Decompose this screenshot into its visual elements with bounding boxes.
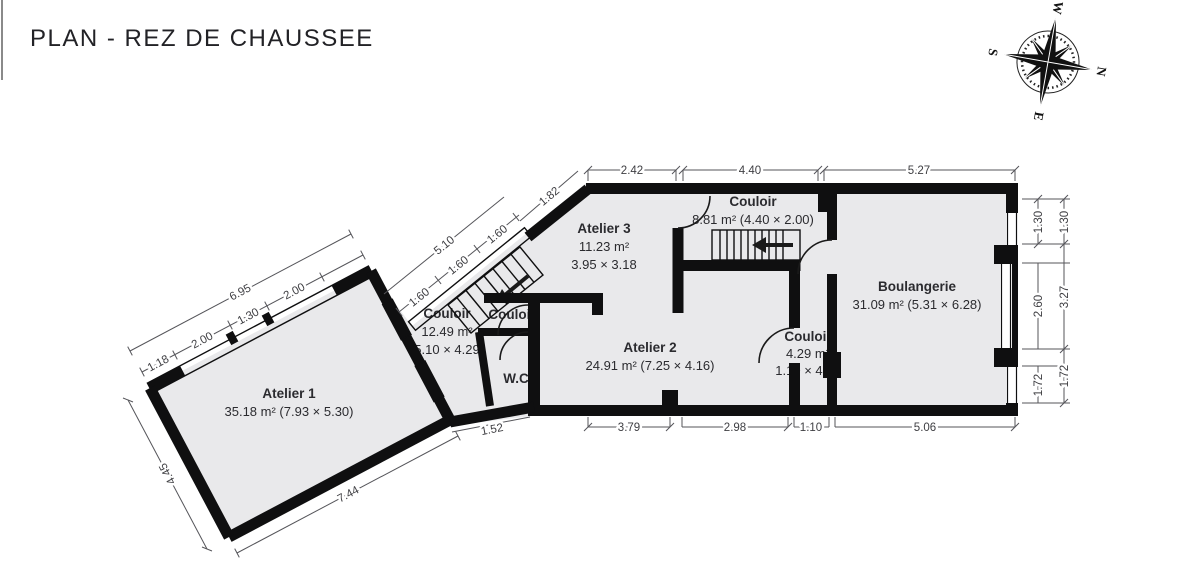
wall-under-stair	[673, 260, 801, 271]
compass-label-w: W	[1050, 0, 1067, 15]
dim-label: 1.72	[1033, 374, 1045, 396]
dim-label: 3.27	[1059, 286, 1071, 308]
compass-cardinal-star	[995, 9, 1102, 116]
wall-boulangerie-left-upper	[827, 194, 837, 240]
dim-label: 1.10	[800, 422, 822, 434]
floor	[150, 183, 1018, 537]
wall-bottom	[528, 405, 1018, 416]
dim-label: 5.06	[914, 422, 936, 434]
room-label-couloir-top-area: 8.81 m² (4.40 × 2.00)	[692, 212, 814, 227]
floor-plan-page: Atelier 3 11.23 m² 3.95 × 3.18 Couloir 8…	[0, 0, 1200, 561]
dim-label: 2.00	[282, 281, 307, 302]
floor-plan-canvas: Atelier 3 11.23 m² 3.95 × 3.18 Couloir 8…	[0, 0, 1200, 561]
dim-label: 1.52	[480, 422, 504, 438]
room-label-boulangerie-area: 31.09 m² (5.31 × 6.28)	[853, 297, 982, 312]
dim-label: 1.30	[1033, 211, 1045, 233]
room-label-wc-name: W.C	[503, 371, 529, 386]
dim-label: 2.98	[724, 422, 746, 434]
dim-label: 2.60	[1033, 295, 1045, 317]
dim-label: 3.79	[618, 422, 640, 434]
wall-atelier2-top	[484, 293, 603, 303]
floor-slab	[150, 183, 1018, 537]
dim-label: 1.72	[1059, 365, 1071, 387]
room-label-atelier3-name: Atelier 3	[577, 221, 631, 236]
compass-label-s: S	[985, 47, 1001, 57]
dim-label: 1.18	[146, 353, 171, 374]
room-label-boulangerie-name: Boulangerie	[878, 279, 957, 294]
room-label-atelier3-area: 11.23 m²	[579, 239, 630, 254]
room-label-couloir-top-name: Couloir	[729, 194, 777, 209]
room-label-atelier3-dims: 3.95 × 3.18	[571, 257, 636, 272]
dim-label: 5.27	[908, 165, 930, 177]
room-label-atelier2-area: 24.91 m² (7.25 × 4.16)	[586, 358, 715, 373]
page-title: PLAN - REZ DE CHAUSSEE	[30, 25, 374, 52]
dim-label: 6.95	[228, 282, 253, 303]
compass-label-n: N	[1093, 66, 1110, 78]
dim-label: 2.00	[190, 330, 215, 351]
room-label-atelier1-area: 35.18 m² (7.93 × 5.30)	[225, 404, 354, 419]
dim-label: 4.45	[157, 461, 178, 486]
wall-couloir-small-lower	[789, 363, 800, 416]
wall-wc-top	[478, 328, 528, 336]
wall-stub-bottom	[662, 390, 678, 405]
compass-rose: N E S W	[976, 0, 1120, 131]
room-label-couloir-small-name: Couloir	[784, 329, 832, 344]
compass-label-e: E	[1031, 111, 1047, 122]
dim-label: 1.30	[1059, 211, 1071, 233]
room-label-atelier1-name: Atelier 1	[262, 386, 316, 401]
dim-label: 4.40	[739, 165, 761, 177]
wall-boulangerie-left-lower	[827, 274, 837, 416]
wall-top	[586, 183, 1018, 194]
room-label-atelier2-name: Atelier 2	[623, 340, 676, 355]
dim-label: 2.42	[621, 165, 643, 177]
wall-atelier2-left	[528, 293, 540, 405]
room-label-couloir-main-dims: 5.10 × 4.29	[414, 342, 479, 357]
dim-label: 7.44	[336, 484, 362, 505]
